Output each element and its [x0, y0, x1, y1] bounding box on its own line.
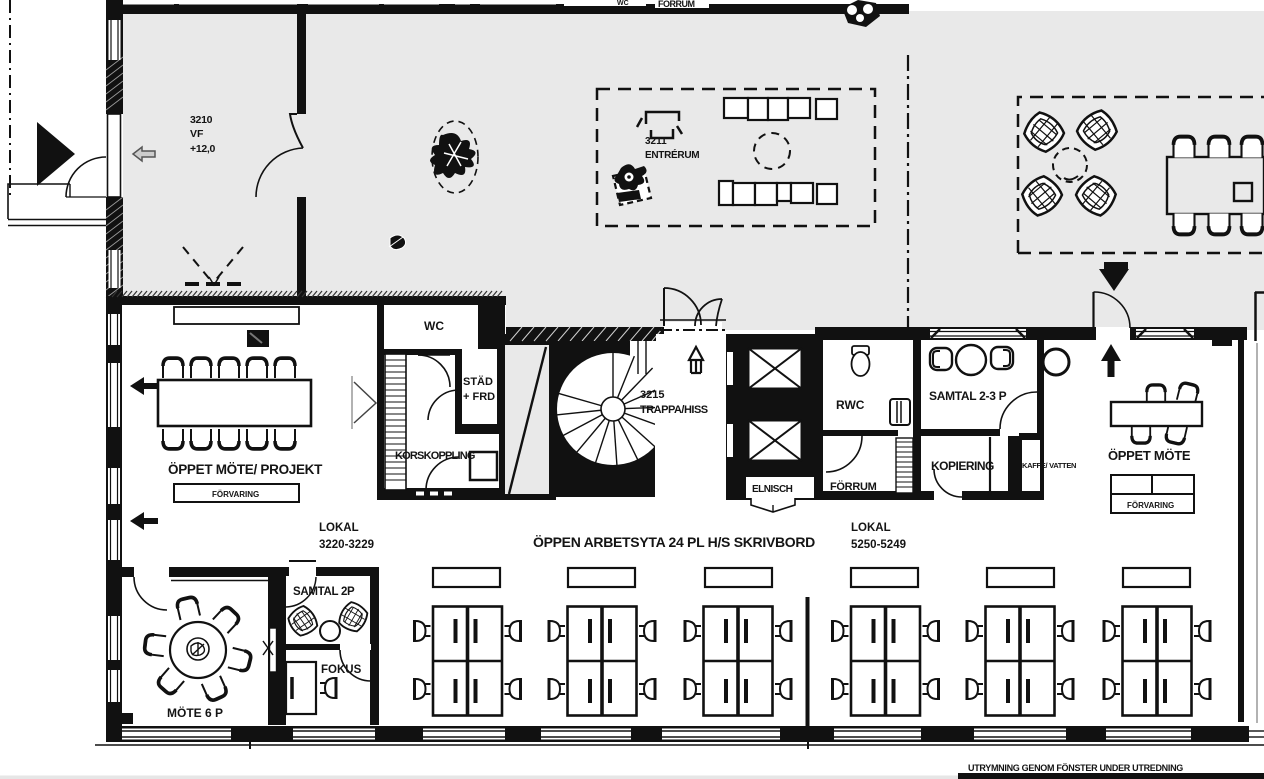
svg-text:UTRYMNING GENOM FÖNSTER UNDER: UTRYMNING GENOM FÖNSTER UNDER UTREDNING: [968, 763, 1183, 773]
svg-text:+12,0: +12,0: [190, 143, 216, 155]
svg-text:ELNISCH: ELNISCH: [752, 484, 793, 495]
svg-text:3215: 3215: [640, 389, 664, 401]
svg-text:VF: VF: [190, 128, 204, 140]
svg-text:ÖPPET MÖTE/ PROJEKT: ÖPPET MÖTE/ PROJEKT: [168, 462, 323, 477]
svg-text:RWC: RWC: [836, 398, 865, 412]
svg-text:LOKAL: LOKAL: [851, 522, 891, 534]
svg-text:3210: 3210: [190, 114, 213, 126]
svg-text:FÖRVARING: FÖRVARING: [1127, 501, 1174, 510]
svg-text:KAFFE/ VATTEN: KAFFE/ VATTEN: [1022, 461, 1076, 470]
svg-text:LOKAL: LOKAL: [319, 522, 359, 534]
svg-text:STÄD: STÄD: [463, 375, 493, 388]
svg-text:3220-3229: 3220-3229: [319, 539, 374, 551]
svg-text:SAMTAL 2-3 P: SAMTAL 2-3 P: [929, 389, 1007, 403]
svg-text:FÖRRUM: FÖRRUM: [658, 0, 695, 9]
svg-text:MÖTE 6 P: MÖTE 6 P: [167, 705, 223, 720]
svg-text:SAMTAL 2P: SAMTAL 2P: [293, 586, 355, 598]
svg-text:+ FRD: + FRD: [463, 391, 495, 403]
svg-text:5250-5249: 5250-5249: [851, 539, 906, 551]
svg-text:ENTRÉRUM: ENTRÉRUM: [645, 148, 699, 161]
svg-text:FÖRRUM: FÖRRUM: [830, 480, 877, 493]
svg-text:ÖPPET MÖTE: ÖPPET MÖTE: [1108, 448, 1191, 463]
svg-text:FOKUS: FOKUS: [321, 664, 362, 676]
svg-text:ÖPPEN ARBETSYTA 24 PL H/S SKRI: ÖPPEN ARBETSYTA 24 PL H/S SKRIVBORD: [533, 534, 815, 550]
svg-text:KOPIERING: KOPIERING: [931, 459, 994, 473]
svg-text:WC: WC: [617, 0, 629, 7]
svg-text:KORSKOPPLING: KORSKOPPLING: [395, 450, 475, 462]
svg-text:WC: WC: [424, 319, 444, 333]
svg-text:TRAPPA/HISS: TRAPPA/HISS: [640, 404, 708, 416]
svg-text:3211: 3211: [645, 136, 667, 147]
svg-text:FÖRVARING: FÖRVARING: [212, 490, 259, 499]
